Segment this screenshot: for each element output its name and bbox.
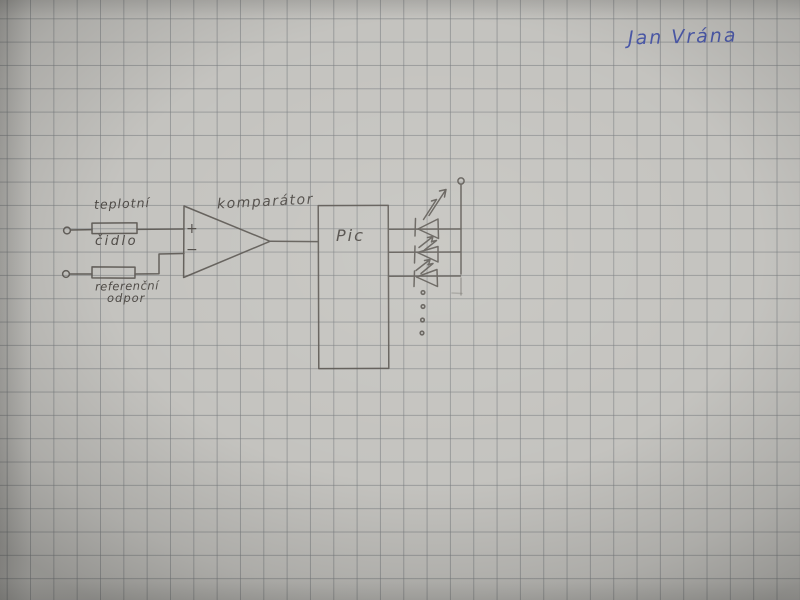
reference-resistor (92, 267, 135, 278)
wire-sensor (71, 229, 185, 230)
sensor-label-line1: teplotní (94, 195, 150, 212)
led-3 (414, 260, 438, 287)
input-terminal-2 (63, 271, 70, 278)
comparator-plus-input: + (186, 221, 199, 237)
led-1-emission-arrows (424, 190, 447, 220)
sensor-label-line2: čidlo (95, 234, 138, 249)
mcu-label: Pic (336, 226, 365, 245)
supply-terminal (458, 178, 464, 184)
signature: Jan Vrána (628, 25, 738, 50)
graph-paper-photo: teplotní čidlo referenční odpor komparát… (0, 0, 800, 600)
comparator-minus-input: − (186, 242, 199, 258)
input-terminal-1 (64, 227, 71, 234)
sensor-resistor (92, 223, 137, 234)
wire-reference (70, 254, 185, 275)
supply-rail-dash (452, 293, 462, 294)
led-1 (415, 190, 446, 239)
ellipsis-dots (420, 291, 425, 335)
led-2 (415, 237, 439, 264)
reference-label-line2: odpor (107, 291, 145, 305)
